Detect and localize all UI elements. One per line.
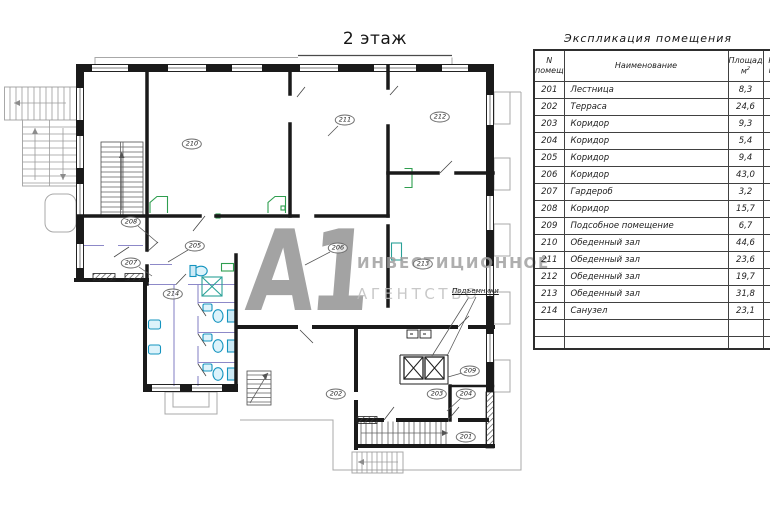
room-label-202: 202 [326,389,346,400]
room-label-204: 204 [456,389,476,400]
col-header-clipped: К п [763,50,770,82]
room-label-207: 207 [121,258,141,269]
room-label-212: 212 [430,112,450,123]
explication-grid: N помещ. Наименование Площадь, м2 К п 20… [533,49,770,350]
table-row: 201Лестница8,3 [534,82,770,99]
table-row: 212Обеденный зал19,7 [534,269,770,286]
table-row: 204Коридор5,4 [534,133,770,150]
col-header-name: Наименование [564,50,728,82]
table-header-row: N помещ. Наименование Площадь, м2 К п [534,50,770,82]
table-empty-row [534,320,770,337]
table-row: 206Коридор43,0 [534,167,770,184]
table-row: 209Подсобное помещение6,7 [534,218,770,235]
room-label-210: 210 [182,139,202,150]
room-label-211: 211 [335,115,355,126]
plan-title: 2 этаж [300,29,450,49]
room-label-213: 213 [413,259,433,270]
col-header-number: N помещ. [534,50,564,82]
room-label-205: 205 [185,241,205,252]
room-label-209: 209 [460,366,480,377]
col-header-area: Площадь, м2 [728,50,763,82]
table-title: Экспликация помещения [533,32,763,45]
room-label-214: 214 [163,289,183,300]
table-row: 211Обеденный зал23,6 [534,252,770,269]
explication-body: 201Лестница8,3202Терраса24,6203Коридор9,… [534,82,770,350]
table-row: 213Обеденный зал31,8 [534,286,770,303]
table-row: 208Коридор15,7 [534,201,770,218]
room-label-208: 208 [121,217,141,228]
explication-table: Экспликация помещения N помещ. Наименова… [533,32,770,350]
table-row: 202Терраса24,6 [534,99,770,116]
table-row: 205Коридор9,4 [534,150,770,167]
table-row: 210Обеденный зал44,6 [534,235,770,252]
floor-plan-sheet: А1 ИНВЕСТИЦИОННОЕ АГЕНТСТВО 2 этаж Подъе… [0,0,770,510]
table-row: 203Коридор9,3 [534,116,770,133]
room-label-201: 201 [456,432,476,443]
table-row: 214Санузел23,1 [534,303,770,320]
room-label-206: 206 [328,243,348,254]
table-row: 207Гардероб3,2 [534,184,770,201]
table-empty-row [534,337,770,350]
room-label-203: 203 [427,389,447,400]
